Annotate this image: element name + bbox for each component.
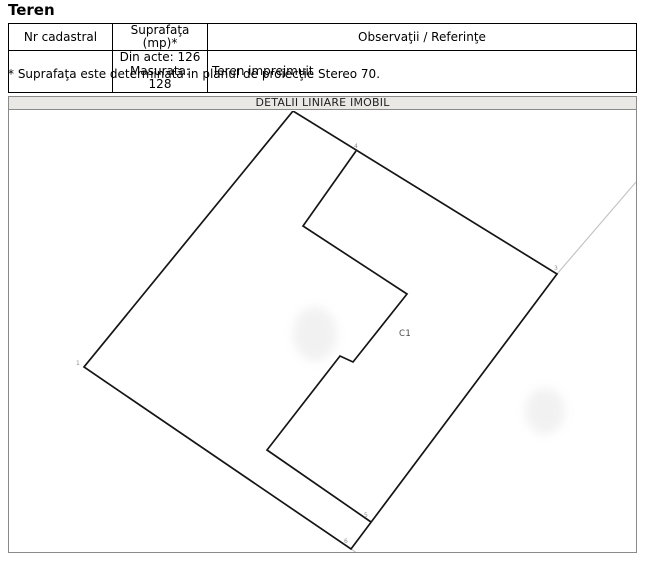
vertex-label: 3 (554, 265, 558, 272)
col-header-nr-cadastral: Nr cadastral (9, 24, 113, 51)
scan-smudge (525, 388, 565, 434)
boundary-extension-line (557, 182, 636, 274)
scan-smudge (293, 307, 337, 361)
vertex-label: 4 (354, 143, 358, 150)
cadastral-plan-drawing: 123456C1 (9, 111, 636, 552)
vertex-label: 6 (344, 538, 348, 545)
suprafata-din-acte: Din acte: 126 (117, 51, 203, 65)
vertex-label: 5 (364, 512, 368, 519)
col-header-observatii: Observaţii / Referinţe (208, 24, 637, 51)
page-title: Teren (8, 1, 55, 19)
teren-table: Nr cadastral Suprafaţa (mp)* Observaţii … (8, 23, 637, 93)
building-outline (267, 151, 407, 522)
footnote: * Suprafaţa este determinată in planul d… (8, 67, 380, 81)
cadastral-document-page: Teren Nr cadastral Suprafaţa (mp)* Obser… (0, 0, 645, 563)
vertex-label: 1 (76, 360, 80, 367)
table-header-row: Nr cadastral Suprafaţa (mp)* Observaţii … (9, 24, 637, 51)
building-label: C1 (399, 329, 411, 339)
plan-title: DETALII LINIARE IMOBIL (9, 97, 636, 110)
col-header-suprafata: Suprafaţa (mp)* (113, 24, 208, 51)
plan-section: DETALII LINIARE IMOBIL 123456C1 (8, 96, 637, 553)
boundary-extension-line (351, 549, 364, 552)
